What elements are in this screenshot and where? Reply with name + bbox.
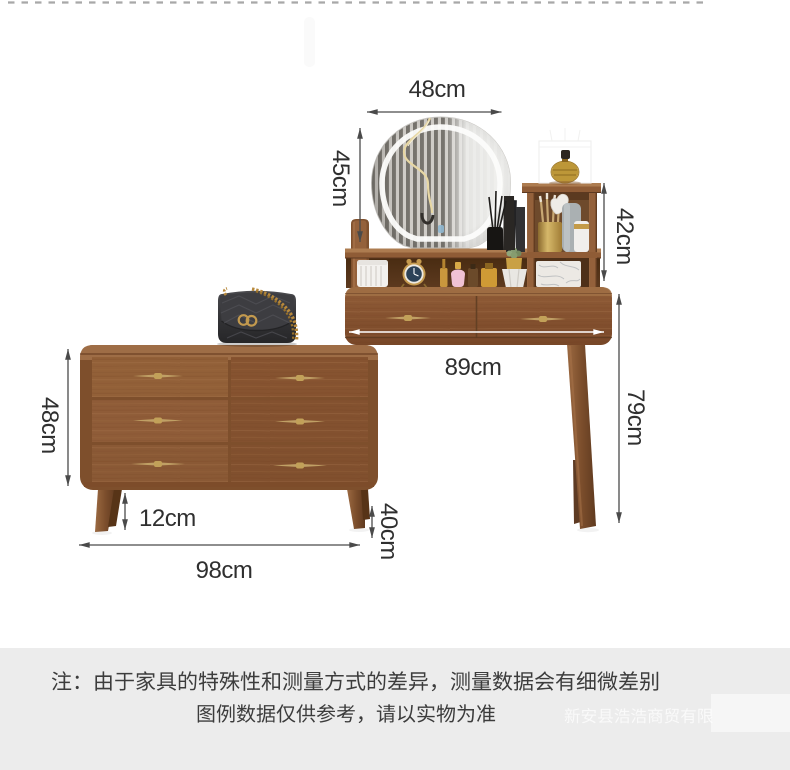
svg-text:42cm: 42cm <box>611 208 638 265</box>
svg-text:12cm: 12cm <box>139 505 196 532</box>
svg-text:48cm: 48cm <box>36 397 63 454</box>
svg-text:40cm: 40cm <box>375 503 402 560</box>
svg-text:98cm: 98cm <box>196 557 253 584</box>
svg-text:45cm: 45cm <box>327 150 354 207</box>
svg-text:48cm: 48cm <box>409 76 466 103</box>
svg-text:89cm: 89cm <box>445 354 502 381</box>
svg-text:79cm: 79cm <box>622 389 649 446</box>
